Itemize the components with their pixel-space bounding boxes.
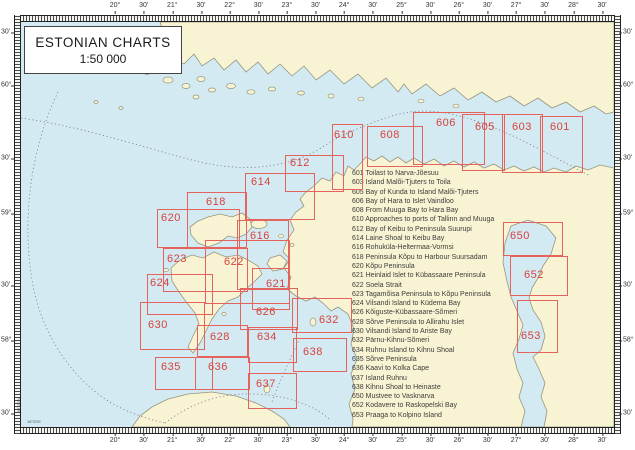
longitude-label-text: 26° xyxy=(454,2,465,9)
longitude-label: 30' xyxy=(483,437,492,444)
chart-box-number-634: 634 xyxy=(257,331,277,343)
chart-box-number-626: 626 xyxy=(256,306,276,318)
legend-entry-612: 612 Bay of Keibu to Peninsula Suurupi xyxy=(352,225,494,234)
chart-box-number-635: 635 xyxy=(161,361,181,373)
legend-entry-610: 610 Approaches to ports of Tallinn and M… xyxy=(352,215,494,224)
tick-mark xyxy=(316,433,317,436)
longitude-label: 27° xyxy=(511,2,522,9)
longitude-label-text: 28° xyxy=(568,2,579,9)
chart-box-number-638: 638 xyxy=(303,346,323,358)
legend-entry-614: 614 Laine Shoal to Keibu Bay xyxy=(352,234,494,243)
latitude-label-text: 30' xyxy=(1,282,10,289)
longitude-label-text: 23° xyxy=(282,437,293,444)
longitude-label: 26° xyxy=(454,2,465,9)
longitude-label-text: 30' xyxy=(426,2,435,9)
longitude-label-text: 21° xyxy=(167,2,178,9)
longitude-label-text: 30' xyxy=(540,437,549,444)
tick-mark xyxy=(619,413,622,414)
latitude-label-text: 60° xyxy=(1,82,12,89)
tick-mark xyxy=(201,433,202,436)
longitude-label-text: 30' xyxy=(597,2,606,9)
longitude-label: 23° xyxy=(282,437,293,444)
longitude-label-text: 25° xyxy=(396,2,407,9)
chart-box-number-612: 612 xyxy=(290,157,310,169)
latitude-label-text: 30' xyxy=(623,155,632,162)
frame-corner-note-horizontal: 18°20'E xyxy=(27,419,41,424)
chart-box-number-623: 623 xyxy=(167,253,187,265)
map-frame-ruler-right xyxy=(614,15,621,434)
tick-mark xyxy=(619,32,622,33)
legend-entry-624: 624 Vilsandi Island to Küdema Bay xyxy=(352,299,494,308)
longitude-label-text: 22° xyxy=(224,2,235,9)
tick-mark xyxy=(344,433,345,436)
longitude-label-text: 30' xyxy=(426,437,435,444)
longitude-label-text: 21° xyxy=(167,437,178,444)
longitude-label: 30' xyxy=(196,2,205,9)
longitude-label-text: 27° xyxy=(511,437,522,444)
latitude-label: 30' xyxy=(1,155,10,162)
tick-mark xyxy=(11,285,14,286)
chart-box-number-632: 632 xyxy=(319,314,339,326)
longitude-label: 30' xyxy=(426,2,435,9)
longitude-label-text: 30' xyxy=(483,2,492,9)
chart-box-number-622: 622 xyxy=(224,256,244,268)
tick-mark xyxy=(373,11,374,14)
tick-mark xyxy=(573,433,574,436)
chart-box-number-610: 610 xyxy=(334,129,354,141)
longitude-label-text: 26° xyxy=(454,437,465,444)
longitude-label-text: 30' xyxy=(196,437,205,444)
latitude-label: 60° xyxy=(1,82,12,89)
longitude-label-text: 22° xyxy=(224,437,235,444)
tick-mark xyxy=(230,11,231,14)
latitude-label-text: 30' xyxy=(623,282,632,289)
longitude-label: 24° xyxy=(339,2,350,9)
legend-entry-616: 616 Rohuküla-Heltermaa-Vormsi xyxy=(352,243,494,252)
tick-mark xyxy=(619,158,622,159)
chart-box-number-618: 618 xyxy=(206,196,226,208)
longitude-label: 30' xyxy=(254,2,263,9)
map-frame-ruler-top xyxy=(14,15,621,22)
chart-box-653[interactable] xyxy=(517,300,558,353)
longitude-label: 21° xyxy=(167,2,178,9)
tick-mark xyxy=(602,433,603,436)
legend-entry-622: 622 Soela Strait xyxy=(352,281,494,290)
chart-box-number-653: 653 xyxy=(521,330,541,342)
chart-box-number-621: 621 xyxy=(266,278,286,290)
chart-box-number-624: 624 xyxy=(150,277,170,289)
tick-mark xyxy=(487,11,488,14)
tick-mark xyxy=(516,11,517,14)
legend-entry-630: 630 Vilsandi Island to Ariste Bay xyxy=(352,327,494,336)
tick-mark xyxy=(11,340,14,341)
tick-mark xyxy=(230,433,231,436)
latitude-label-text: 58° xyxy=(1,337,12,344)
legend-entry-623: 623 Tagamõisa Peninsula to Kõpu Peninsul… xyxy=(352,290,494,299)
tick-mark xyxy=(619,340,622,341)
longitude-label-text: 30' xyxy=(368,437,377,444)
longitude-label-text: 30' xyxy=(139,437,148,444)
chart-box-number-652: 652 xyxy=(524,269,544,281)
tick-mark xyxy=(11,213,14,214)
longitude-label: 30' xyxy=(368,437,377,444)
chart-box-number-606: 606 xyxy=(436,117,456,129)
longitude-label: 30' xyxy=(139,2,148,9)
tick-mark xyxy=(172,433,173,436)
longitude-label: 30' xyxy=(483,2,492,9)
tick-mark xyxy=(287,11,288,14)
latitude-label: 59° xyxy=(623,210,634,217)
longitude-label: 30' xyxy=(540,2,549,9)
longitude-label-text: 20° xyxy=(110,437,121,444)
legend-entry-637: 637 Island Ruhnu xyxy=(352,374,494,383)
longitude-label-text: 24° xyxy=(339,2,350,9)
chart-box-number-636: 636 xyxy=(208,361,228,373)
legend-entry-621: 621 Heinlaid Islet to Kübassaare Peninsu… xyxy=(352,271,494,280)
tick-mark xyxy=(144,11,145,14)
latitude-label-text: 60° xyxy=(623,82,634,89)
legend-entry-608: 608 From Muuga Bay to Hara Bay xyxy=(352,206,494,215)
latitude-label-text: 59° xyxy=(1,210,12,217)
latitude-label-text: 30' xyxy=(1,155,10,162)
longitude-label: 30' xyxy=(196,437,205,444)
legend-entry-638: 638 Kihnu Shoal to Heinaste xyxy=(352,383,494,392)
tick-mark xyxy=(619,213,622,214)
latitude-label: 30' xyxy=(1,410,10,417)
longitude-label: 30' xyxy=(540,437,549,444)
tick-mark xyxy=(373,433,374,436)
longitude-label: 23° xyxy=(282,2,293,9)
longitude-label: 25° xyxy=(396,437,407,444)
tick-mark xyxy=(402,11,403,14)
longitude-label-text: 25° xyxy=(396,437,407,444)
tick-mark xyxy=(459,11,460,14)
longitude-label-text: 30' xyxy=(196,2,205,9)
longitude-label: 22° xyxy=(224,437,235,444)
chart-index-page: 601 Toilast to Narva-Jõesuu603 Island Ma… xyxy=(0,0,635,450)
tick-mark xyxy=(344,11,345,14)
longitude-label-text: 30' xyxy=(254,437,263,444)
latitude-label: 59° xyxy=(1,210,12,217)
legend-entry-652: 652 Kodavere to Raskopelski Bay xyxy=(352,401,494,410)
legend-entry-632: 632 Pärnu-Kihnu-Sõmeri xyxy=(352,336,494,345)
chart-legend: 601 Toilast to Narva-Jõesuu603 Island Ma… xyxy=(352,169,494,420)
chart-box-number-650: 650 xyxy=(510,230,530,242)
longitude-label: 22° xyxy=(224,2,235,9)
chart-box-number-608: 608 xyxy=(380,129,400,141)
tick-mark xyxy=(258,11,259,14)
latitude-label: 30' xyxy=(623,29,632,36)
latitude-label: 60° xyxy=(623,82,634,89)
legend-entry-635: 635 Sõrve Peninsula xyxy=(352,355,494,364)
longitude-label: 25° xyxy=(396,2,407,9)
longitude-label: 28° xyxy=(568,2,579,9)
chart-box-number-628: 628 xyxy=(210,331,230,343)
latitude-label: 30' xyxy=(623,155,632,162)
tick-mark xyxy=(619,85,622,86)
map-frame-ruler-left xyxy=(14,15,21,434)
tick-mark xyxy=(287,433,288,436)
longitude-label-text: 30' xyxy=(483,437,492,444)
longitude-label-text: 28° xyxy=(568,437,579,444)
chart-box-number-601: 601 xyxy=(550,121,570,133)
longitude-label: 30' xyxy=(139,437,148,444)
tick-mark xyxy=(430,433,431,436)
longitude-label: 30' xyxy=(597,437,606,444)
latitude-label: 30' xyxy=(623,410,632,417)
longitude-label: 30' xyxy=(311,2,320,9)
page-title: ESTONIAN CHARTS xyxy=(35,35,170,50)
legend-entry-603: 603 Island Malõi-Tjuters to Toila xyxy=(352,178,494,187)
chart-box-number-616: 616 xyxy=(250,230,270,242)
longitude-label: 26° xyxy=(454,437,465,444)
tick-mark xyxy=(11,158,14,159)
longitude-label-text: 30' xyxy=(597,437,606,444)
latitude-label: 30' xyxy=(623,282,632,289)
tick-mark xyxy=(602,11,603,14)
tick-mark xyxy=(11,85,14,86)
longitude-label: 21° xyxy=(167,437,178,444)
longitude-label-text: 20° xyxy=(110,2,121,9)
legend-entry-605: 605 Bay of Kunda to Island Malõi-Tjuters xyxy=(352,188,494,197)
longitude-label: 30' xyxy=(311,437,320,444)
tick-mark xyxy=(545,433,546,436)
legend-entry-626: 626 Kõiguste-Kübassaare-Sõmeri xyxy=(352,308,494,317)
tick-mark xyxy=(316,11,317,14)
longitude-label-text: 30' xyxy=(368,2,377,9)
tick-mark xyxy=(573,11,574,14)
tick-mark xyxy=(516,433,517,436)
legend-entry-650: 650 Mustvee to Vasknarva xyxy=(352,392,494,401)
longitude-label: 30' xyxy=(254,437,263,444)
latitude-label-text: 30' xyxy=(1,410,10,417)
chart-box-number-637: 637 xyxy=(256,378,276,390)
chart-box-number-630: 630 xyxy=(148,319,168,331)
longitude-label-text: 27° xyxy=(511,2,522,9)
tick-mark xyxy=(144,433,145,436)
tick-mark xyxy=(459,433,460,436)
legend-entry-620: 620 Kõpu Peninsula xyxy=(352,262,494,271)
tick-mark xyxy=(11,32,14,33)
longitude-label-text: 30' xyxy=(311,437,320,444)
legend-entry-606: 606 Bay of Hara to Islet Vaindloo xyxy=(352,197,494,206)
longitude-label: 27° xyxy=(511,437,522,444)
longitude-label: 30' xyxy=(426,437,435,444)
tick-mark xyxy=(619,285,622,286)
tick-mark xyxy=(201,11,202,14)
latitude-label: 58° xyxy=(623,337,634,344)
tick-mark xyxy=(172,11,173,14)
tick-mark xyxy=(487,433,488,436)
tick-mark xyxy=(430,11,431,14)
latitude-label-text: 58° xyxy=(623,337,634,344)
tick-mark xyxy=(545,11,546,14)
tick-mark xyxy=(11,413,14,414)
tick-mark xyxy=(115,11,116,14)
chart-box-number-620: 620 xyxy=(161,212,181,224)
latitude-label: 30' xyxy=(1,29,10,36)
legend-entry-618: 618 Peninsula Kõpu to Harbour Suursadam xyxy=(352,253,494,262)
latitude-label: 58° xyxy=(1,337,12,344)
title-box: ESTONIAN CHARTS 1:50 000 xyxy=(24,26,182,74)
legend-entry-628: 628 Sõrve Peninsula to Allirahu Islet xyxy=(352,318,494,327)
latitude-label-text: 30' xyxy=(623,410,632,417)
longitude-label: 30' xyxy=(368,2,377,9)
longitude-label-text: 30' xyxy=(311,2,320,9)
frame-corner-note-vertical: 57°20'N xyxy=(16,398,21,412)
longitude-label-text: 30' xyxy=(139,2,148,9)
longitude-label: 20° xyxy=(110,437,121,444)
latitude-label: 30' xyxy=(1,282,10,289)
tick-mark xyxy=(115,433,116,436)
legend-entry-634: 634 Ruhnu Island to Kihnu Shoal xyxy=(352,346,494,355)
tick-mark xyxy=(402,433,403,436)
longitude-label-text: 24° xyxy=(339,437,350,444)
latitude-label-text: 30' xyxy=(623,29,632,36)
longitude-label: 20° xyxy=(110,2,121,9)
legend-entry-636: 636 Kaavi to Kolka Cape xyxy=(352,364,494,373)
chart-box-number-614: 614 xyxy=(251,176,271,188)
longitude-label: 30' xyxy=(597,2,606,9)
chart-scale: 1:50 000 xyxy=(80,52,127,66)
longitude-label-text: 30' xyxy=(254,2,263,9)
longitude-label-text: 30' xyxy=(540,2,549,9)
longitude-label: 28° xyxy=(568,437,579,444)
longitude-label: 24° xyxy=(339,437,350,444)
chart-box-number-605: 605 xyxy=(475,121,495,133)
latitude-label-text: 30' xyxy=(1,29,10,36)
legend-entry-653: 653 Praaga to Kolpino Island xyxy=(352,411,494,420)
map-frame-ruler-bottom xyxy=(14,427,621,434)
latitude-label-text: 59° xyxy=(623,210,634,217)
longitude-label-text: 23° xyxy=(282,2,293,9)
tick-mark xyxy=(258,433,259,436)
chart-box-number-603: 603 xyxy=(512,121,532,133)
